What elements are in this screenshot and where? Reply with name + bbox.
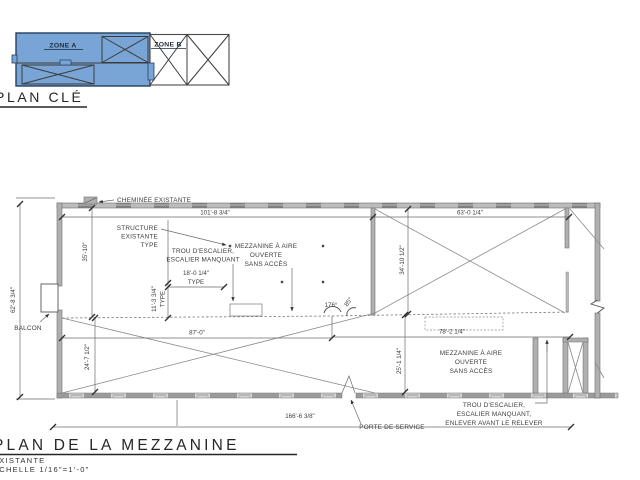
leader-balcon (40, 314, 49, 322)
leader-cheminee (99, 200, 114, 202)
wall-interior (371, 208, 375, 315)
dim-top-left: 101'-8 3/4" (200, 210, 230, 217)
dim-mid-left: 87'-0" (189, 330, 205, 337)
dim-overall-left: 62'-8 3/4" (10, 287, 17, 313)
mezzanine-2-label-1: MEZZANINE À AIRE (440, 348, 503, 357)
mezzanine-1-label-1: MEZZANINE À AIRE (235, 241, 298, 250)
cheminee-label: CHEMINÉE EXISTANTE (117, 195, 191, 204)
dim-bay-depth: 11'-3 3/4" (151, 286, 158, 312)
dim-lower-right: 25'-1 1/4" (396, 348, 403, 374)
wall-break-symbol (591, 300, 604, 313)
key-plan-zone-a-region (16, 33, 150, 86)
key-plan-title: PLAN CLÉ (0, 89, 84, 105)
dim-angle-small: 85° (343, 296, 354, 308)
dim-bay-width-note: TYPE (188, 279, 204, 286)
key-plan-left-bump (12, 55, 17, 63)
structure-label-2: EXISTANTE (121, 234, 158, 241)
angle-arc-85 (347, 308, 356, 316)
dim-angle-main: 176° (325, 302, 338, 309)
wall-left-lower (57, 310, 62, 398)
void-cross-lower-left (62, 318, 375, 393)
trou-2-label-3: ENLEVER AVANT LE RELEVER (445, 420, 543, 427)
trou-2-label-1: TROU D'ESCALIER, (463, 402, 525, 409)
dim-lower-left: 24'-7 1/2" (84, 344, 91, 370)
drawing-subtitle: EXISTANTE (0, 456, 45, 465)
drawing-title: PLAN DE LA MEZZANINE (0, 437, 240, 454)
dim-right-upper: 34'-10 1/2" (399, 245, 406, 275)
wall-right-lower (595, 313, 600, 398)
mezzanine-2-label-2: OUVERTE (455, 359, 487, 366)
dim-bay-width: 18'-0 1/4" (183, 270, 209, 277)
service-door-swing (342, 376, 355, 393)
wall-left-upper (57, 203, 62, 286)
balcony (41, 284, 58, 312)
mezzanine-1-label-3: SANS ACCÈS (245, 259, 288, 268)
trou-1-label-1: TROU D'ESCALIER, (172, 248, 234, 255)
wall-bottom-left (57, 393, 342, 398)
dim-overall-bottom: 166'-6 3/8" (285, 413, 315, 420)
balcon-label: BALCON (14, 325, 42, 332)
dim-mid-right: 78'-2 1/4" (439, 329, 465, 336)
wall-bottom-right (356, 393, 618, 398)
structure-label-3: TYPE (141, 242, 159, 249)
leader-porte (351, 400, 361, 424)
wall-right-upper (595, 203, 600, 301)
floor-plan-drawing: ZONE A ZONE B PLAN CLÉ (0, 0, 640, 480)
trou-2-label-2: ESCALIER MANQUANT, (457, 411, 532, 418)
drawing-scale: ÉCHELLE 1/16"=1'-0" (0, 465, 90, 474)
leader-structure (161, 229, 226, 245)
dim-left-upper: 35'-10" (82, 242, 89, 261)
zone-b-label: ZONE B (154, 42, 181, 49)
mezzanine-1-label-2: OUVERTE (250, 252, 282, 259)
key-plan: ZONE A ZONE B PLAN CLÉ (0, 33, 229, 107)
main-plan (16, 197, 618, 430)
dim-bay-depth-note: TYPE (160, 291, 167, 307)
porte-service-label: PORTE DE SERVICE (359, 424, 424, 431)
mezzanine-2-label-3: SANS ACCÈS (450, 366, 493, 375)
trou-1-label-2: ESCALIER MANQUANT (166, 257, 239, 264)
structure-label-1: STRUCTURE (117, 225, 158, 232)
dim-top-right: 63'-0 1/4" (457, 210, 483, 217)
zone-a-label: ZONE A (49, 43, 76, 50)
stair-opening (230, 304, 262, 316)
title-block: PLAN DE LA MEZZANINE EXISTANTE ÉCHELLE 1… (0, 437, 297, 474)
drawing-canvas: ZONE A ZONE B PLAN CLÉ (0, 0, 640, 480)
